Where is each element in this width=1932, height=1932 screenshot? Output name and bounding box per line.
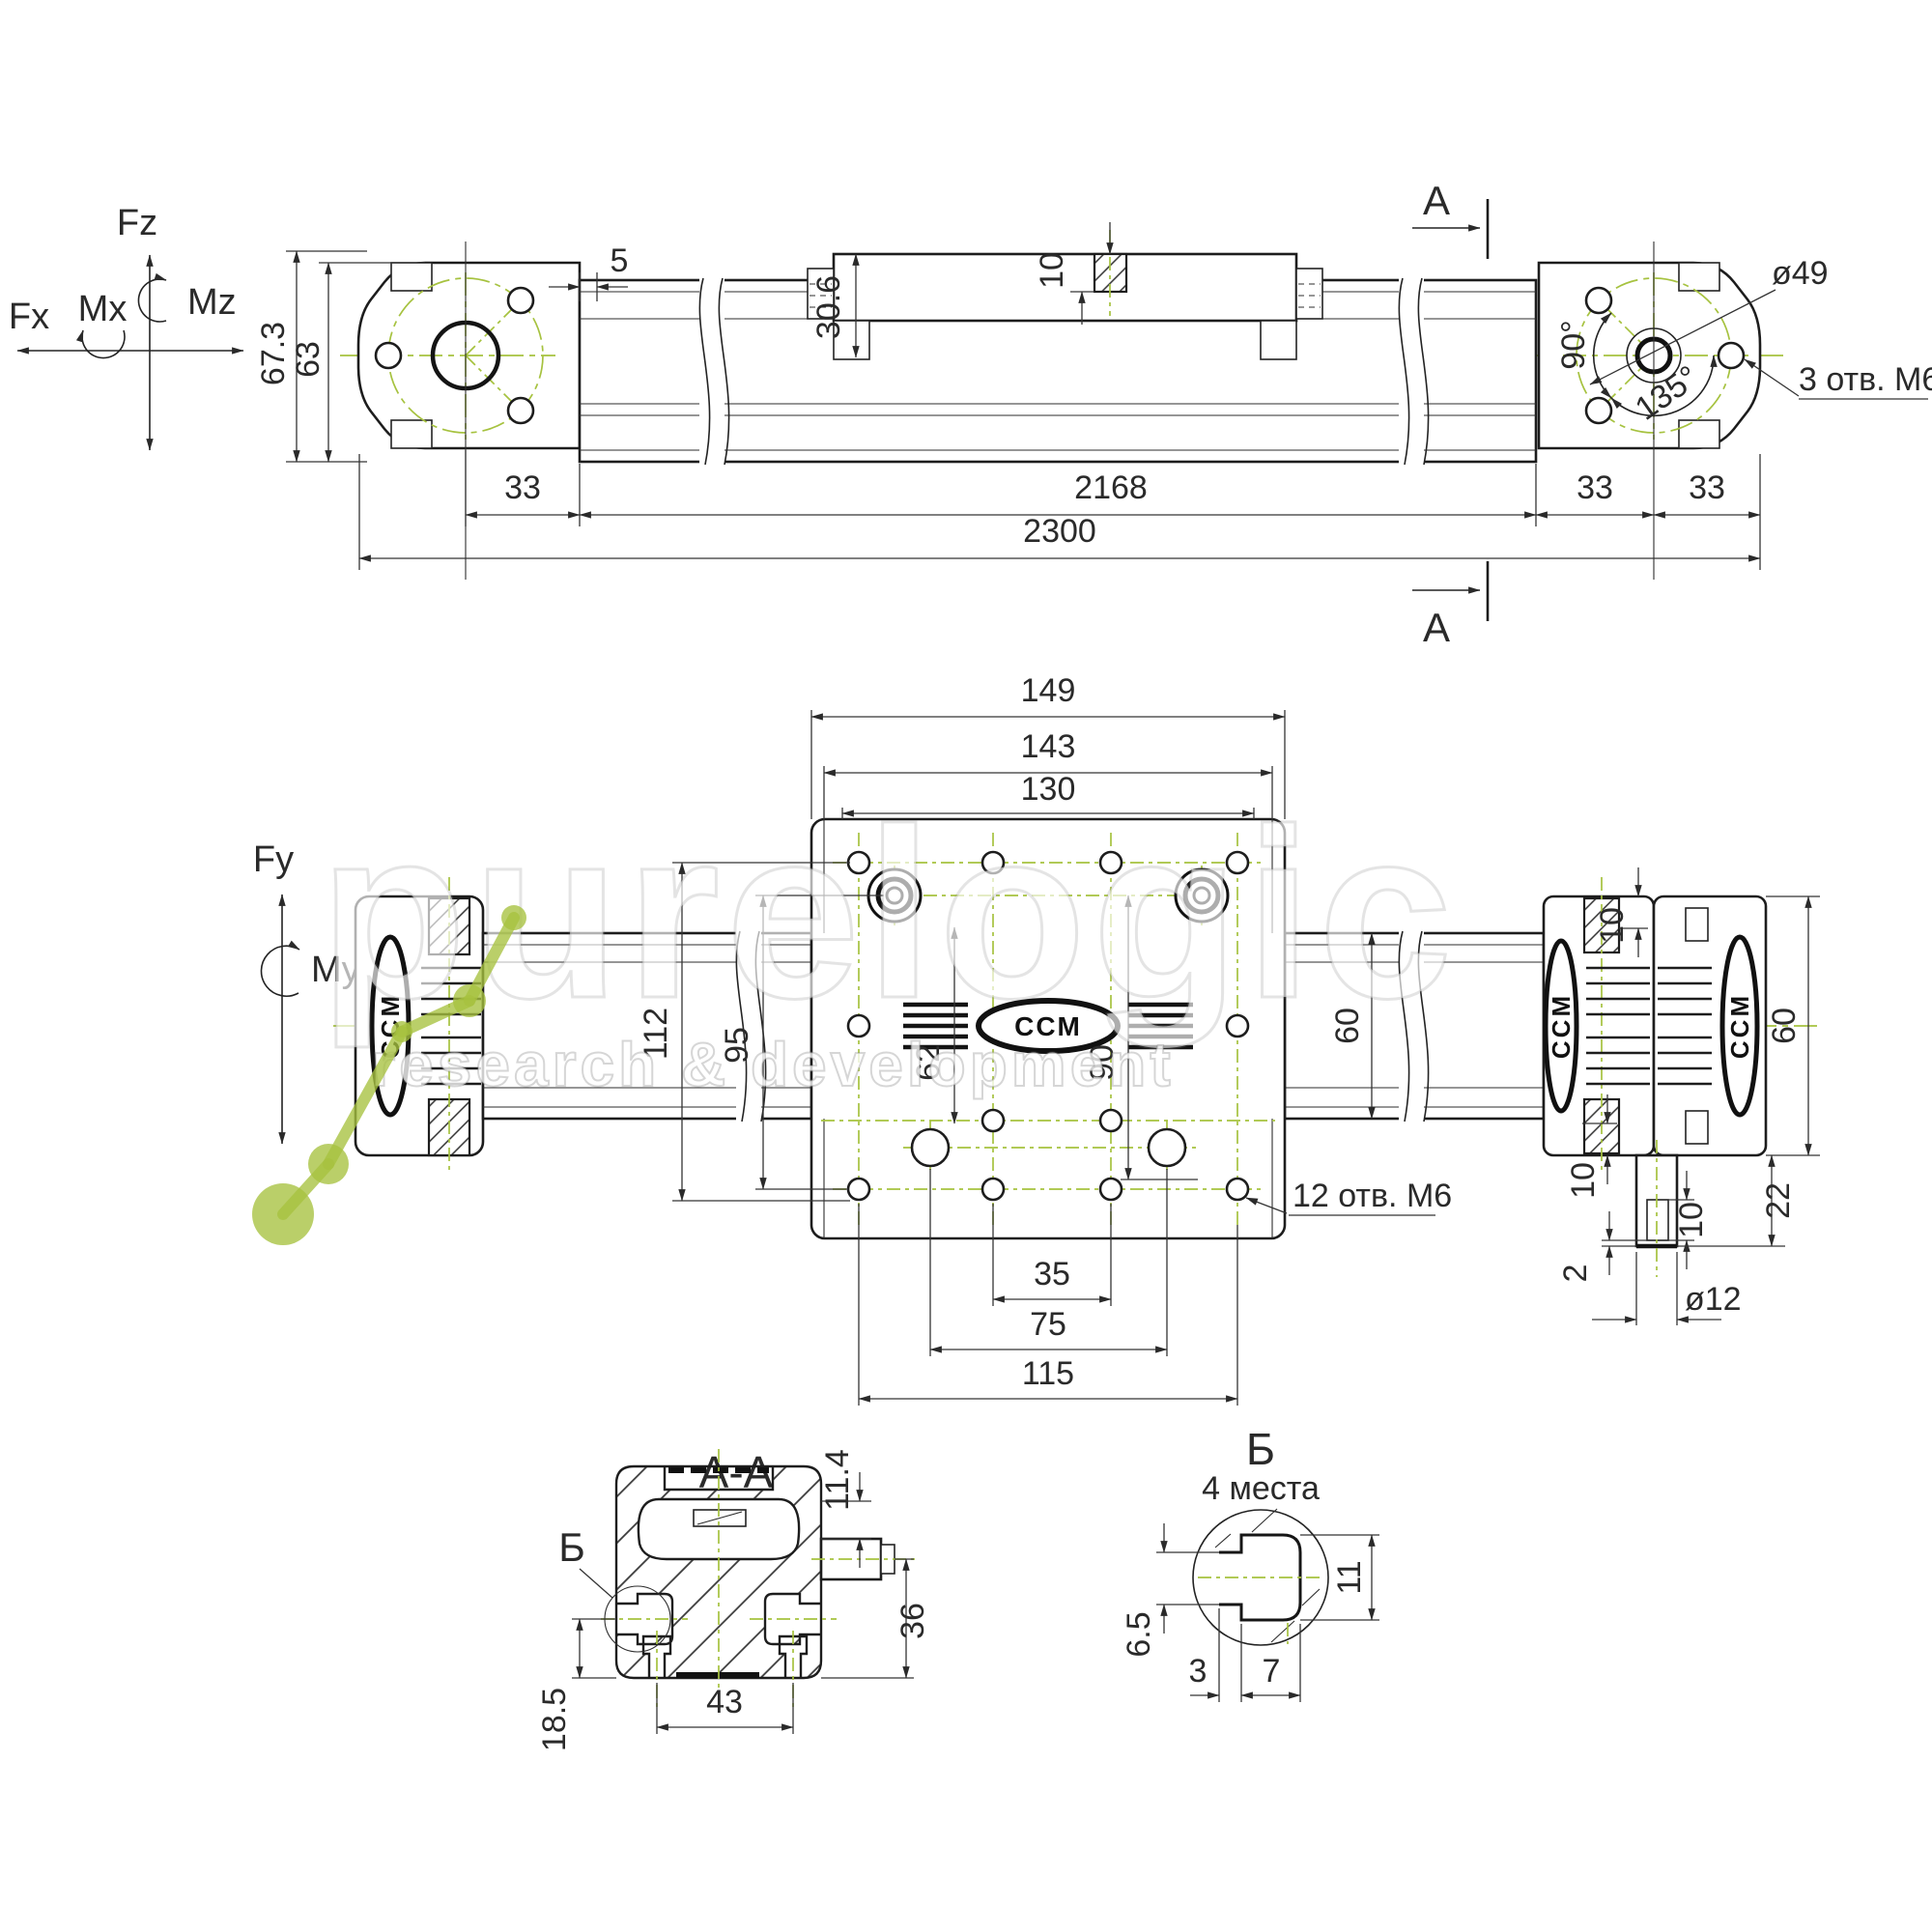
left-end-flange: [358, 241, 580, 580]
section-letter: A: [1423, 605, 1450, 650]
dim-11: 11: [1331, 1560, 1368, 1594]
axis-triad-xz: Fz Fx Mz Mx: [9, 203, 243, 450]
section-mark-a-bottom: A: [1412, 561, 1488, 650]
ccm-logo-text: CCM: [1547, 993, 1576, 1059]
drawing-page: Fz Fx Mz Mx: [0, 0, 1932, 1932]
axis-label-fz: Fz: [117, 203, 157, 243]
dim-43: 43: [706, 1684, 743, 1720]
through-hole: [912, 1129, 949, 1166]
section-aa: A-A Б 11.4 36 18.5: [536, 1447, 931, 1751]
dim-143: 143: [1021, 728, 1076, 765]
axis-label-fx: Fx: [9, 297, 49, 337]
dim-o49: ø49: [1772, 255, 1829, 292]
section-letter: A: [1423, 178, 1450, 223]
dim-33-right2: 33: [1689, 469, 1725, 506]
dim-10-top: 10: [1594, 907, 1631, 944]
watermark-brand: purelogic: [319, 779, 1458, 1048]
dim-angle-90: 90°: [1555, 320, 1592, 369]
dim-10-bottom: 10: [1565, 1162, 1602, 1199]
axis-label-mz: Mz: [187, 282, 237, 323]
dim-67-3: 67.3: [255, 322, 292, 385]
dim-22: 22: [1760, 1182, 1797, 1219]
dim-36: 36: [895, 1603, 931, 1639]
dim-60-block: 60: [1766, 1008, 1803, 1044]
through-hole: [1149, 1129, 1185, 1166]
detail-b: Б 4 места 11 6.5 3 7: [1121, 1424, 1379, 1702]
axis-label-mx: Mx: [78, 289, 128, 329]
dim-115: 115: [1022, 1355, 1074, 1392]
detail-title: Б: [1246, 1424, 1275, 1474]
detail-subtitle: 4 места: [1202, 1470, 1320, 1507]
dim-11-4: 11.4: [819, 1449, 856, 1511]
note-12-holes-m6: 12 отв. М6: [1293, 1178, 1452, 1214]
dim-5: 5: [611, 242, 629, 279]
dim-75: 75: [1030, 1306, 1066, 1343]
dim-10-shaft: 10: [1673, 1202, 1710, 1238]
dim-18-5: 18.5: [536, 1688, 573, 1751]
dim-35: 35: [1034, 1256, 1070, 1293]
dim-2300: 2300: [1023, 513, 1096, 550]
ccm-logo: CCM: [1546, 941, 1577, 1111]
top-view: Fz Fx Mz Mx: [9, 178, 1932, 650]
dim-30-6: 30.6: [810, 275, 847, 339]
dim-10-thread: 10: [1034, 252, 1070, 289]
my-rotation-icon: [261, 946, 299, 996]
dim-33-right1: 33: [1577, 469, 1613, 506]
drive-shaft: [1636, 1140, 1677, 1277]
dim-2168: 2168: [1074, 469, 1148, 506]
right-end-blocks: CCM CCM: [1544, 877, 1766, 1277]
dim-3: 3: [1189, 1653, 1207, 1690]
dim-63: 63: [290, 341, 327, 378]
right-end-flange: 90° 135°: [1539, 241, 1760, 580]
watermark-tagline: research & development: [371, 1030, 1174, 1099]
mz-rotation-icon: [138, 279, 166, 322]
section-mark-a-top: A: [1412, 178, 1488, 259]
dim-33-left: 33: [504, 469, 541, 506]
dim-2: 2: [1557, 1264, 1594, 1283]
ccm-logo-text: CCM: [1725, 993, 1754, 1059]
dim-6-5: 6.5: [1121, 1611, 1157, 1657]
dim-7: 7: [1263, 1653, 1281, 1690]
axis-label-fy: Fy: [253, 839, 294, 880]
engineering-drawing: Fz Fx Mz Mx: [0, 0, 1932, 1932]
mx-rotation-icon: [82, 330, 125, 358]
callout-letter: Б: [558, 1524, 585, 1570]
ccm-logo: CCM: [1722, 937, 1757, 1115]
note-3-holes-m6: 3 отв. М6: [1799, 361, 1932, 398]
dim-149: 149: [1021, 672, 1076, 709]
dim-o12: ø12: [1685, 1281, 1742, 1318]
